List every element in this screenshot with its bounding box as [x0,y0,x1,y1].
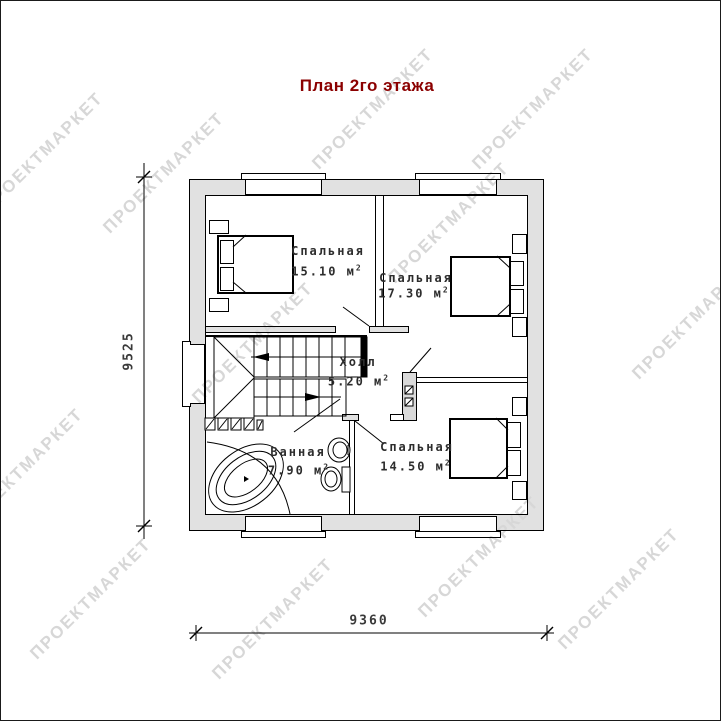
bedroom2-name: Спальная [379,271,453,285]
hall-area: 5.20 м2 [328,374,388,389]
sink-icon [328,438,350,462]
dimension-lines [136,163,554,641]
floor-plan-sheet: План 2го этажа [0,0,721,721]
bedroom2-area: 17.30 м2 [378,286,447,301]
vent-symbols [405,386,413,406]
dimension-horizontal: 9360 [349,614,388,629]
dimension-vertical: 9525 [122,331,137,370]
bedroom1-area: 15.10 м2 [291,264,360,279]
bedroom1-name: Спальная [291,244,365,258]
bedroom3-name: Спальная [380,440,454,454]
stair-railing [205,418,263,430]
bathroom-area: 7.90 м2 [268,463,328,478]
bedroom3-area: 14.50 м2 [380,459,449,474]
bathroom-name: Ванная [270,445,325,459]
hall-name: Холл [340,355,377,369]
